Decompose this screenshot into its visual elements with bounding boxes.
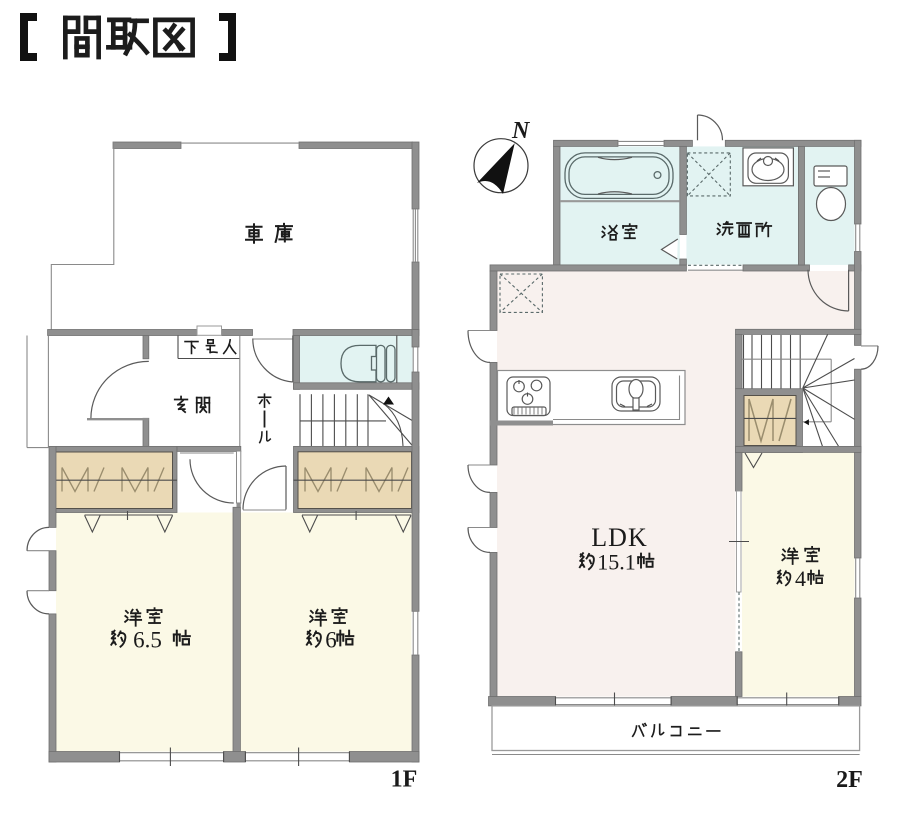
svg-text:4: 4 [795,566,806,591]
svg-text:N: N [511,118,531,144]
svg-text:6: 6 [325,628,337,653]
svg-text:LDK: LDK [591,523,647,552]
svg-text:6.5: 6.5 [133,628,162,653]
svg-text:15.1: 15.1 [597,550,636,575]
svg-text:1F: 1F [391,767,418,793]
svg-text:2F: 2F [836,767,863,793]
